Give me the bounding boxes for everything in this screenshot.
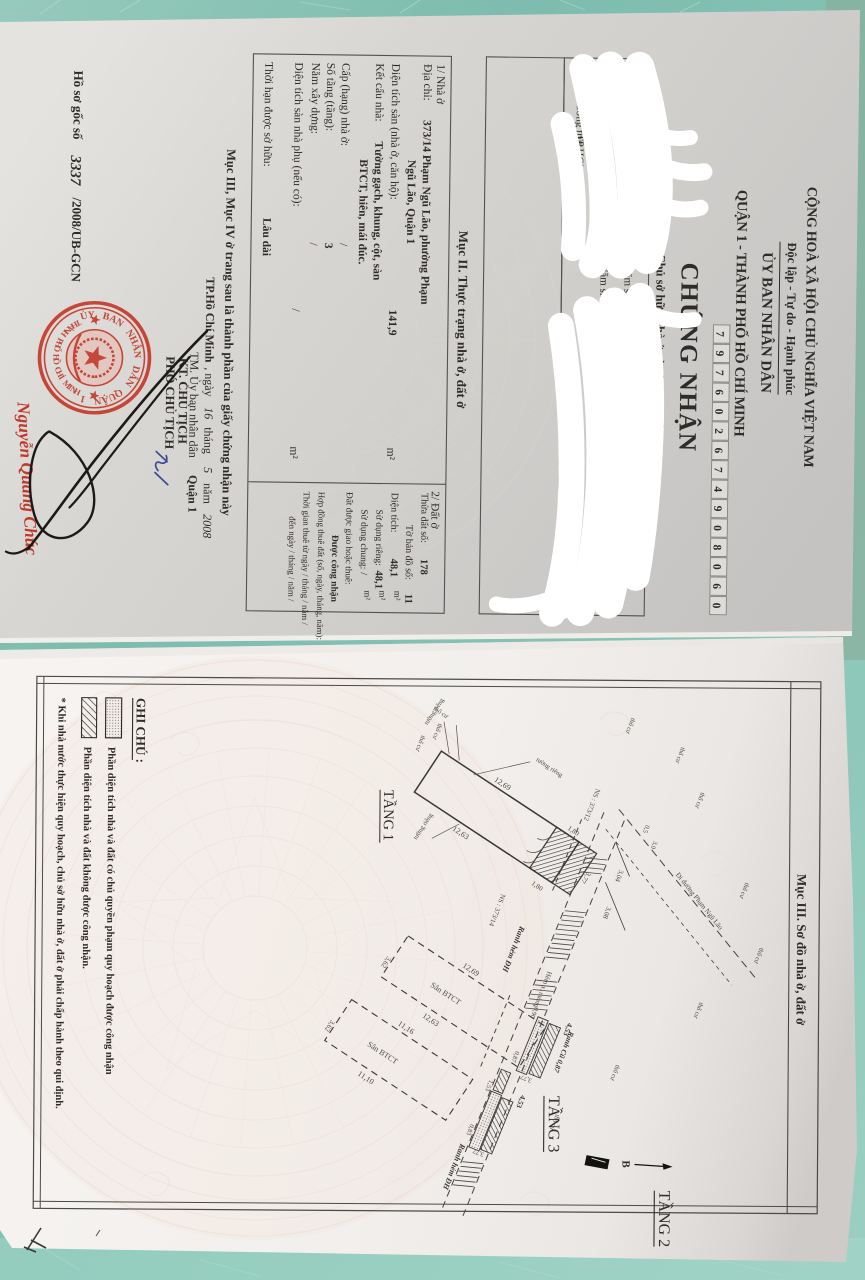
svg-text:, ngày: , ngày (202, 367, 216, 397)
svg-text:năm: năm (201, 483, 215, 505)
svg-text:/2008/UB-GCN: /2008/UB-GCN (68, 196, 84, 282)
svg-text:Thời hạn được sở hữu:: Thời hạn được sở hữu: (261, 62, 274, 167)
svg-text:16: 16 (202, 407, 216, 419)
svg-text:Quận 1: Quận 1 (185, 475, 199, 513)
svg-text:373/14 Phạm Ngũ Lão, phường P: 373/14 Phạm Ngũ Lão, phường Phạm (418, 120, 432, 305)
svg-text:6: 6 (713, 389, 725, 395)
svg-text:m²: m² (362, 590, 372, 600)
svg-text:Sử dụng riêng:: Sử dụng riêng: (373, 509, 384, 565)
svg-text:Phần diện tích nhà và đất có c: Phần diện tích nhà và đất có chủ quyền p… (103, 747, 116, 1075)
svg-text:48,1: 48,1 (372, 570, 383, 589)
svg-text:m²: m² (392, 591, 402, 601)
svg-text:8: 8 (711, 544, 723, 550)
svg-text:9: 9 (713, 350, 725, 356)
svg-text:BTCT, hiên, mái đúc.: BTCT, hiên, mái đúc. (356, 159, 369, 264)
svg-text:/: / (358, 572, 369, 575)
svg-text:TẦNG 1: TẦNG 1 (380, 790, 397, 841)
svg-text:Lâu dài: Lâu dài (260, 218, 273, 257)
svg-text:Ngũ Lão, Quận 1: Ngũ Lão, Quận 1 (404, 160, 417, 245)
svg-text:6: 6 (712, 447, 724, 453)
svg-text:Diện tích:: Diện tích: (388, 493, 400, 533)
svg-text:đến ngày / tháng / năm /: đến ngày / tháng / năm / (286, 516, 297, 602)
svg-text:Sử dụng chung:: Sử dụng chung: (358, 509, 369, 569)
svg-text:Cấp (hạng) nhà ở:: Cấp (hạng) nhà ở: (338, 63, 352, 146)
svg-text:tháng: tháng (201, 427, 215, 454)
svg-text:3: 3 (322, 243, 334, 249)
svg-text:TP.Hồ Chí Minh: TP.Hồ Chí Minh (202, 277, 217, 363)
svg-text:0: 0 (712, 409, 724, 415)
svg-text:141,9: 141,9 (386, 310, 398, 336)
svg-text:7: 7 (713, 370, 725, 376)
svg-text:Số tầng (tầng):: Số tầng (tầng): (323, 63, 337, 132)
svg-text:0: 0 (710, 603, 722, 609)
svg-text:Tờ bản đồ số:: Tờ bản đồ số: (403, 525, 415, 580)
svg-text:Tường gạch, khung, cột, sàn: Tường gạch, khung, cột, sàn (371, 141, 385, 281)
svg-text:11: 11 (402, 594, 413, 604)
svg-text:GHI CHÚ :: GHI CHÚ : (133, 698, 148, 763)
svg-text:1/ Nhà ở: 1/ Nhà ở (434, 64, 447, 105)
svg-text:0: 0 (710, 564, 722, 570)
svg-text:9: 9 (711, 506, 723, 512)
svg-text:ỦY BAN NHÂN DÂN: ỦY BAN NHÂN DÂN (757, 252, 776, 393)
svg-text:B: B (619, 1160, 631, 1168)
svg-text:Được công nhận: Được công nhận (328, 535, 340, 603)
svg-text:TẦNG 2: TẦNG 2 (655, 1191, 674, 1248)
svg-text:Mục III. Sơ đồ nhà ở, đất ở: Mục III. Sơ đồ nhà ở, đất ở (793, 874, 809, 1026)
svg-text:Đất được giao hoặc thuê:: Đất được giao hoặc thuê: (344, 492, 355, 585)
svg-text:6: 6 (710, 583, 722, 589)
svg-text:m²: m² (384, 448, 396, 461)
svg-text:5: 5 (201, 467, 215, 473)
svg-text:Mục II. Thực trạng nhà ở, đất: Mục II. Thực trạng nhà ở, đất ở (454, 231, 471, 410)
svg-text:Phần diện tích nhà và đất khôn: Phần diện tích nhà và đất không được côn… (80, 747, 93, 970)
svg-text:178: 178 (418, 559, 429, 575)
svg-text:0: 0 (711, 525, 723, 531)
svg-text:Thửa đất số:: Thửa đất số: (418, 493, 430, 543)
svg-text:48,1: 48,1 (388, 559, 399, 578)
svg-text:Hợp đồng thuê đất (số, ngày, t: Hợp đồng thuê đất (số, ngày, tháng, năm)… (315, 492, 327, 640)
svg-text:4: 4 (711, 486, 723, 492)
svg-text:7: 7 (713, 331, 725, 337)
svg-text:2: 2 (712, 428, 724, 434)
svg-text:3337: 3337 (67, 154, 83, 186)
svg-text:CHỨNG NHẬN: CHỨNG NHẬN (673, 262, 703, 452)
svg-text:Diện tích sàn nhà phụ (nếu có): Diện tích sàn nhà phụ (nếu có): (290, 62, 305, 207)
svg-text:m²: m² (287, 446, 299, 459)
svg-text:7: 7 (712, 467, 724, 473)
svg-text:Diện tích sàn (nhà ở, căn hộ):: Diện tích sàn (nhà ở, căn hộ): (388, 64, 402, 200)
svg-text:Thời gian thuê từ ngày / thá: Thời gian thuê từ ngày / tháng / năm / (300, 491, 312, 625)
svg-text:Độc lập - Tự do - Hạnh phúc: Độc lập - Tự do - Hạnh phúc (783, 242, 799, 395)
svg-text:2008: 2008 (200, 514, 214, 538)
svg-text:Kết cấu nhà:: Kết cấu nhà: (373, 63, 387, 121)
svg-text:Năm xây dựng:: Năm xây dựng: (308, 63, 321, 135)
svg-text:Hồ sơ gốc số: Hồ sơ gốc số (70, 70, 86, 140)
svg-text:m²: m² (377, 590, 387, 600)
svg-text:Địa chỉ:: Địa chỉ: (421, 64, 433, 101)
